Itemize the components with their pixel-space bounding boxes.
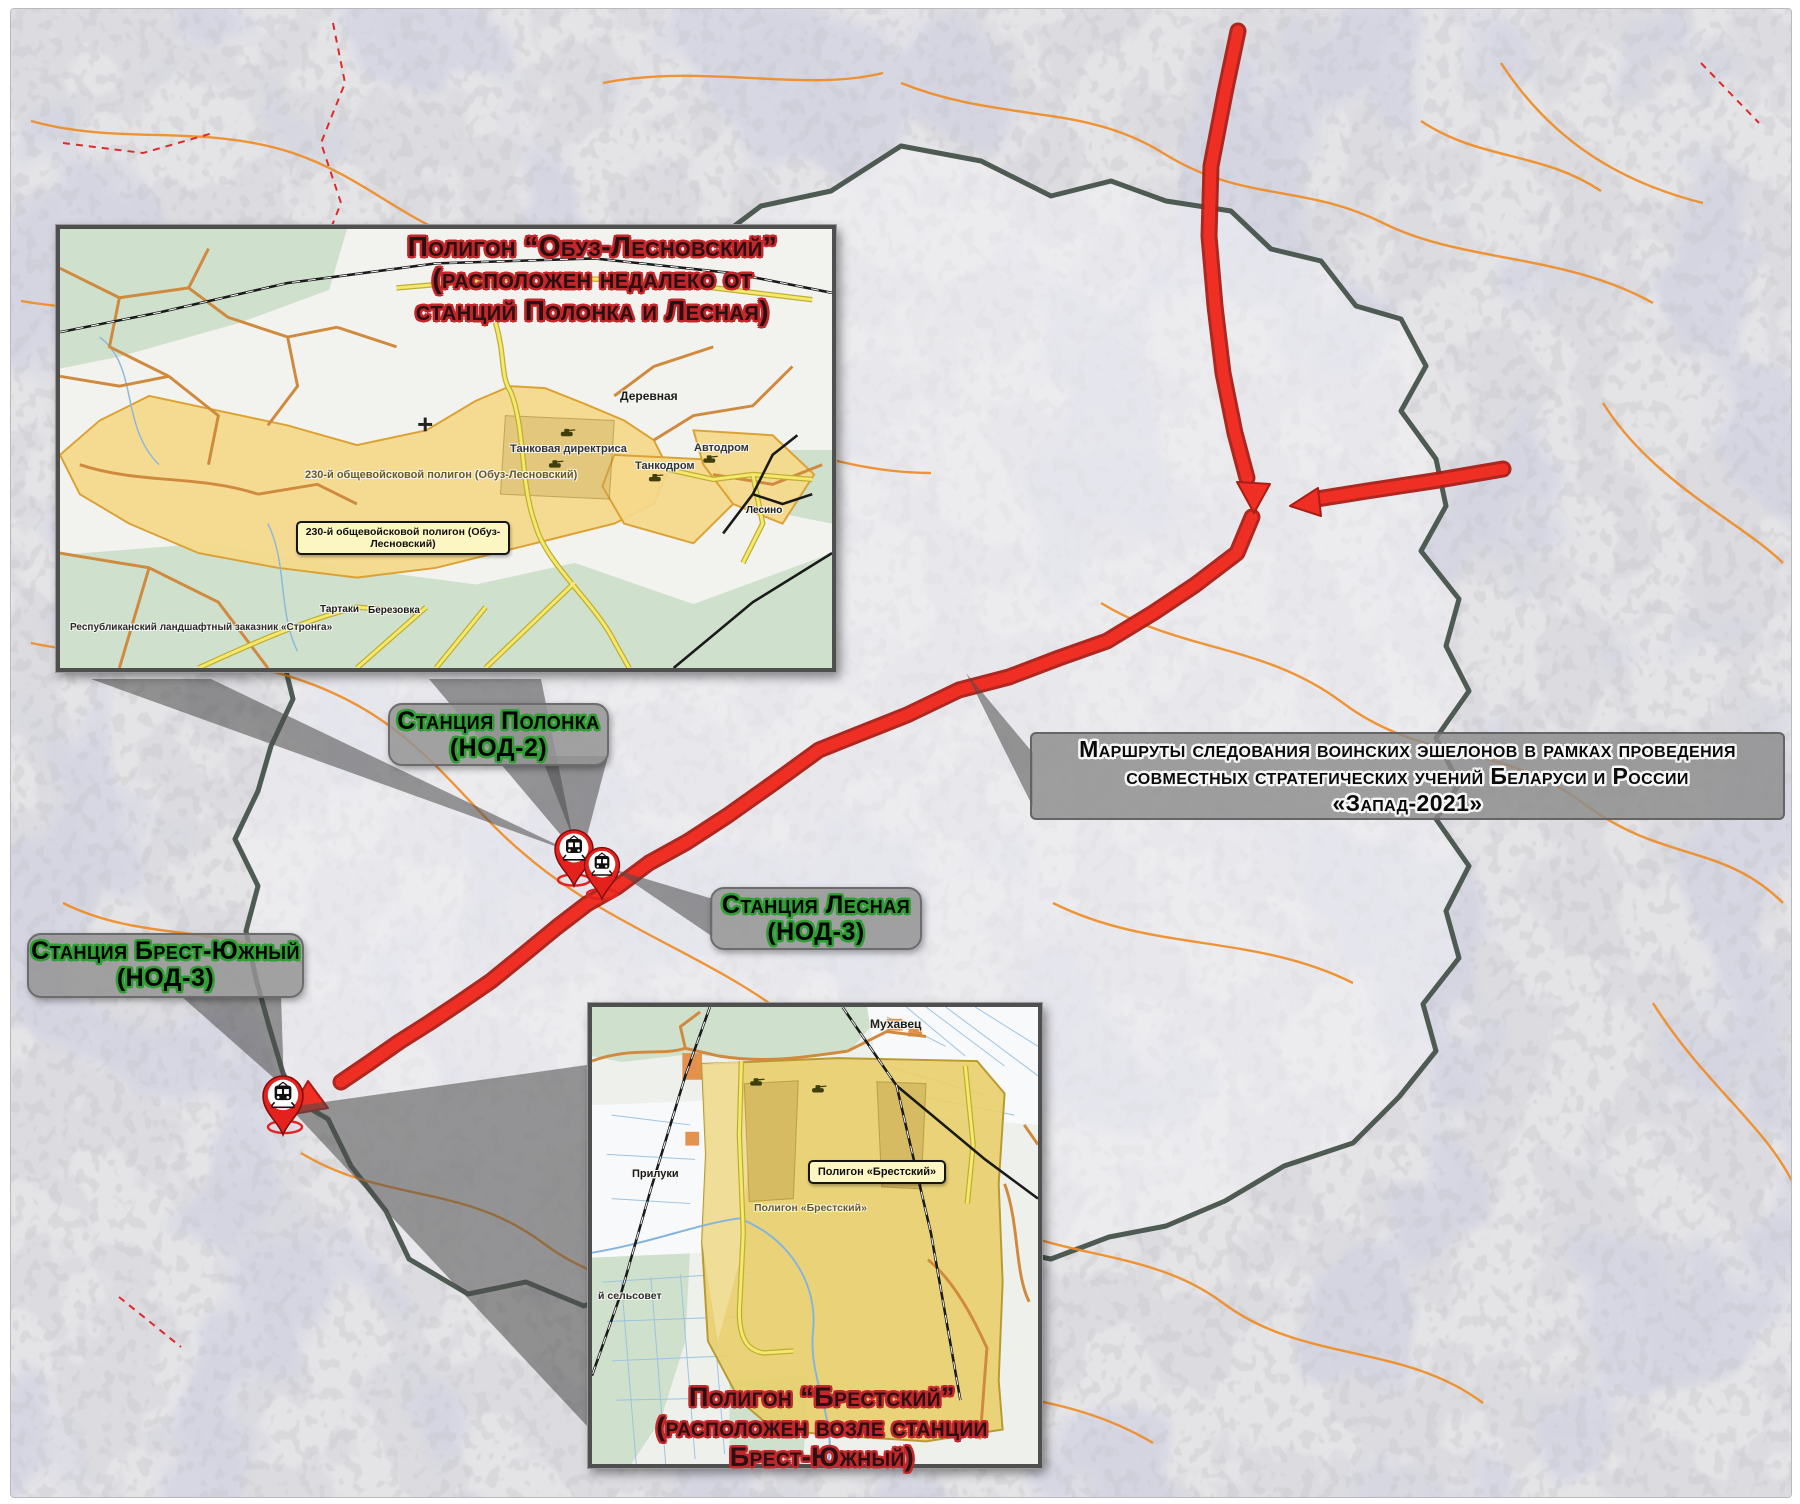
lesnaya-name: Станция Лесная — [712, 892, 920, 919]
place-tankodrom: Танкодром — [635, 460, 695, 472]
brest-title-line2: (расположен возле станции — [612, 1412, 1032, 1442]
place-lesino: Лесино — [746, 505, 782, 516]
station-label-brest: Станция Брест-Южный (НОД-3) — [27, 933, 304, 998]
map-page: Деревная Танковая директриса Танкодром А… — [0, 0, 1800, 1504]
brest-name: Станция Брест-Южный — [29, 938, 302, 965]
area-label-brestsky: Полигон «Брестский» — [754, 1202, 867, 1214]
area-label-230: 230-й общевойсковой полигон (Обуз-Леснов… — [305, 469, 577, 481]
label-box-brestsky: Полигон «Брестский» — [808, 1160, 946, 1184]
lesnaya-code: (НОД-3) — [712, 919, 920, 946]
place-stronga: Республиканский ландшафтный заказник «Ст… — [70, 622, 332, 633]
routes-note-box: Маршруты следования воинских эшелонов в … — [1030, 732, 1785, 820]
note-line1: Маршруты следования воинских эшелонов в … — [1032, 736, 1783, 763]
place-derevnaya: Деревная — [620, 389, 678, 403]
obuz-title-line3: станций Полонка и Лесная) — [400, 295, 785, 327]
polonka-name: Станция Полонка — [390, 708, 607, 735]
place-selsovet: й сельсовет — [598, 1290, 662, 1302]
obuz-title-line2: (расположен недалеко от — [400, 263, 785, 295]
place-tank-directrix: Танковая директриса — [510, 443, 627, 455]
note-line3: «Запад-2021» — [1032, 790, 1783, 817]
label-box-230: 230-й общевойсковой полигон (Обуз-Леснов… — [296, 521, 510, 555]
place-tartaki: Тартаки — [320, 604, 359, 615]
station-label-lesnaya: Станция Лесная (НОД-3) — [710, 887, 922, 950]
place-priluki: Прилуки — [632, 1168, 679, 1180]
inset-obuz-title: Полигон “Обуз-Лесновский” (расположен не… — [400, 231, 785, 327]
brest-title-line1: Полигон “Брестский” — [612, 1382, 1032, 1412]
polonka-code: (НОД-2) — [390, 735, 607, 762]
place-mukhavets: Мухавец — [870, 1017, 921, 1031]
obuz-title-line1: Полигон “Обуз-Лесновский” — [400, 231, 785, 263]
station-label-polonka: Станция Полонка (НОД-2) — [388, 703, 609, 766]
brest-title-line3: Брест-Южный) — [612, 1442, 1032, 1472]
note-line2: совместных стратегических учений Беларус… — [1032, 763, 1783, 790]
place-avtodrom: Автодром — [694, 442, 749, 454]
place-berezovka: Березовка — [368, 605, 420, 616]
inset-brest-title: Полигон “Брестский” (расположен возле ст… — [612, 1382, 1032, 1472]
brest-code: (НОД-3) — [29, 965, 302, 992]
